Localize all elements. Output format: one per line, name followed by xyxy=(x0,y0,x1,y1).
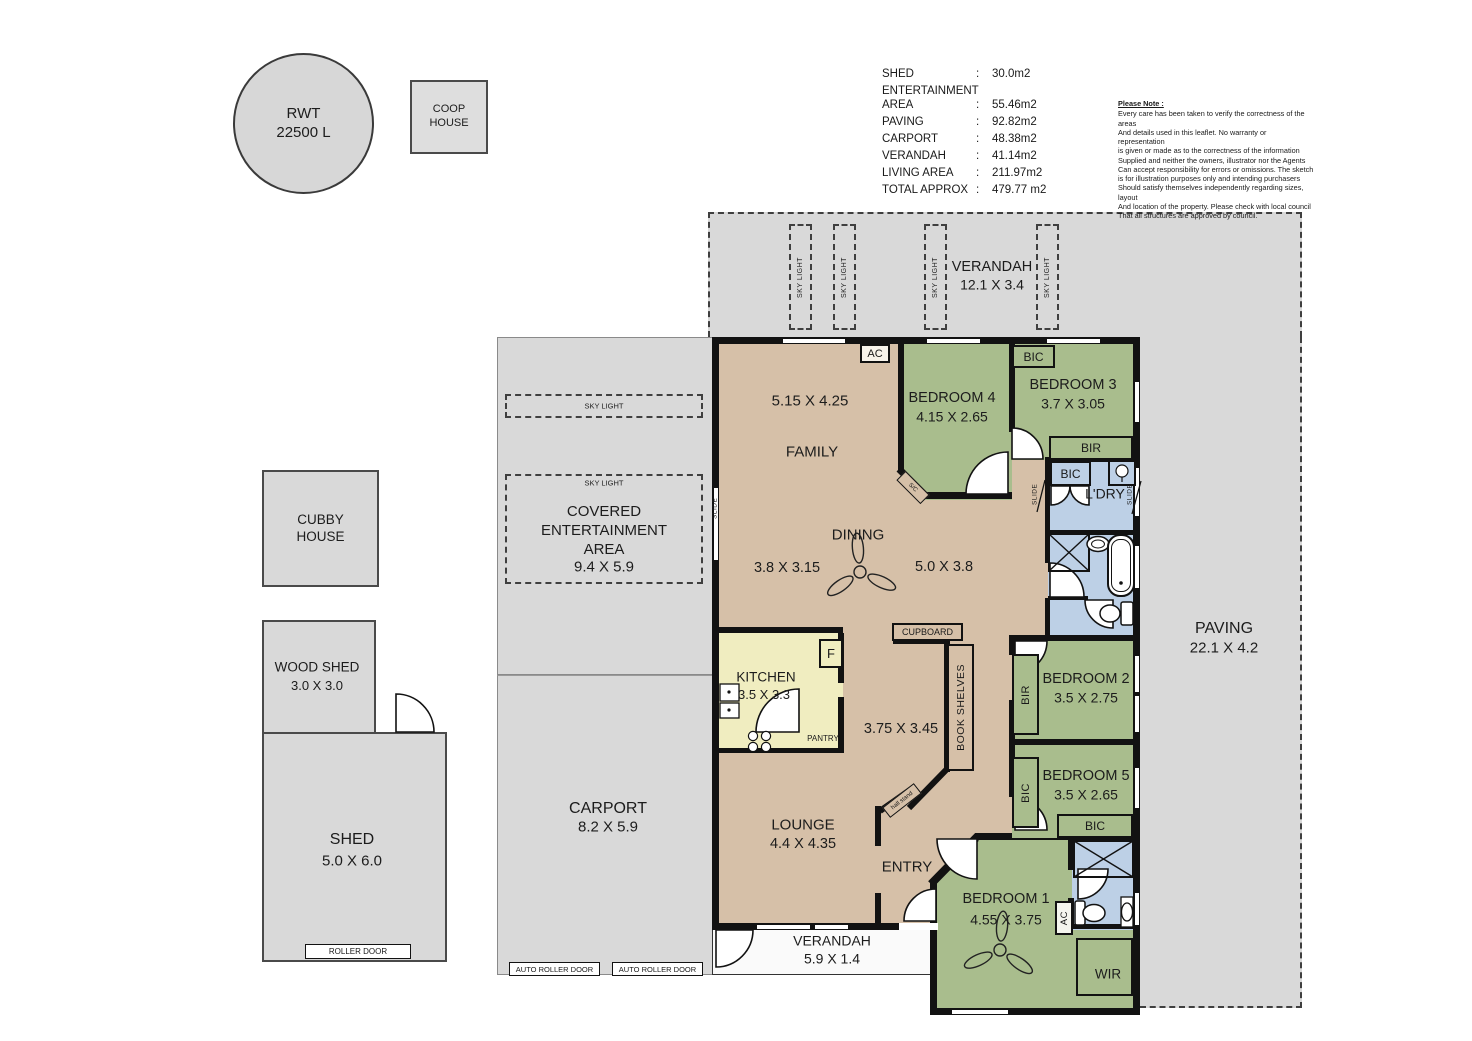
carport-label: CARPORT xyxy=(569,799,647,819)
floorplan-sheet: RWT 22500 L COOP HOUSE CUBBY HOUSE WOOD … xyxy=(0,0,1472,1041)
covered-area-dim: 9.4 X 5.9 xyxy=(574,559,634,578)
rainwater-tank-label: RWT 22500 L xyxy=(276,105,330,143)
bedroom3-label: BEDROOM 3 xyxy=(1029,376,1116,394)
verandah-bottom-label: VERANDAH xyxy=(793,932,871,950)
disclaimer-body: Every care has been taken to verify the … xyxy=(1118,109,1314,220)
roller-door-label: ROLLER DOOR xyxy=(329,947,387,956)
wood-shed-label: WOOD SHED xyxy=(275,660,360,677)
area-summary-table: SHED:30.0m2 ENTERTAINMENT AREA:55.46m2 P… xyxy=(882,68,1112,201)
wall-segment xyxy=(1048,596,1088,600)
window xyxy=(1134,768,1140,808)
bir-bedroom2: BIR xyxy=(1012,654,1039,735)
bic-laundry: BIC xyxy=(1050,461,1091,486)
summary-row: CARPORT:48.38m2 xyxy=(882,133,1112,147)
summary-row: PAVING:92.82m2 xyxy=(882,116,1112,130)
ac-bedroom1: AC xyxy=(1055,901,1073,935)
paving-dim: 22.1 X 4.2 xyxy=(1190,640,1258,659)
family-dim: 5.15 X 4.25 xyxy=(772,393,849,412)
dining-label: DINING xyxy=(832,527,885,546)
cupboard: CUPBOARD xyxy=(892,623,963,641)
disclaimer: Please Note : Every care has been taken … xyxy=(1118,99,1314,220)
bedroom4-label: BEDROOM 4 xyxy=(908,389,995,407)
kitchen-label: KITCHEN xyxy=(736,670,795,687)
coop-house-label: COOP HOUSE xyxy=(429,103,468,131)
wall-segment xyxy=(719,627,843,633)
ac-unit: AC xyxy=(860,344,890,363)
wood-shed-door-arc xyxy=(396,694,434,732)
wall-segment xyxy=(875,893,881,923)
coop-house: COOP HOUSE xyxy=(410,80,488,154)
auto-roller-door: AUTO ROLLER DOOR xyxy=(612,962,703,976)
window xyxy=(1134,382,1140,422)
verandah-bottom-dim: 5.9 X 1.4 xyxy=(804,950,860,968)
sky-light-label: SKY LIGHT xyxy=(1038,240,1057,315)
verandah-top-label: VERANDAH xyxy=(952,258,1033,276)
covered-area-label: COVERED ENTERTAINMENT AREA xyxy=(541,503,667,559)
bir-bedroom3: BIR xyxy=(1049,436,1133,460)
wall-segment xyxy=(1048,530,1133,535)
window xyxy=(757,924,810,930)
dining-dim-left: 3.8 X 3.15 xyxy=(754,559,820,577)
bedroom5-dim: 3.5 X 2.65 xyxy=(1054,786,1118,804)
family-label: FAMILY xyxy=(786,444,838,463)
summary-row: ENTERTAINMENT AREA:55.46m2 xyxy=(882,85,1112,112)
summary-row: SHED:30.0m2 xyxy=(882,68,1112,82)
paving-label: PAVING xyxy=(1195,619,1253,639)
hall-dim: 3.75 X 3.45 xyxy=(864,720,938,738)
sky-light-label: SKY LIGHT xyxy=(926,240,945,315)
carport-dim: 8.2 X 5.9 xyxy=(578,819,638,838)
fridge: F xyxy=(819,639,843,668)
wood-shed-dim: 3.0 X 3.0 xyxy=(291,678,343,694)
bedroom1-label: BEDROOM 1 xyxy=(962,890,1049,908)
slide-label: SLIDE xyxy=(709,486,721,530)
bedroom1-dim: 4.55 X 3.75 xyxy=(970,911,1042,929)
window xyxy=(1134,546,1140,588)
laundry-label: L'DRY xyxy=(1085,485,1125,503)
bedroom5-label: BEDROOM 5 xyxy=(1042,767,1129,785)
cubby-house-label: CUBBY HOUSE xyxy=(296,512,344,546)
bedroom2-label: BEDROOM 2 xyxy=(1042,670,1129,688)
entry-label: ENTRY xyxy=(882,859,933,878)
sky-light-label: SKY LIGHT xyxy=(835,240,854,315)
sky-light-label: SKY LIGHT xyxy=(584,401,623,410)
paving-area xyxy=(1140,337,1302,1008)
bedroom4-dim: 4.15 X 2.65 xyxy=(916,408,988,426)
summary-row: LIVING AREA:211.97m2 xyxy=(882,167,1112,181)
disclaimer-title: Please Note : xyxy=(1118,99,1314,108)
summary-row-total: TOTAL APPROX:479.77 m2 xyxy=(882,184,1112,198)
kitchen-dim: 3.5 X 3.3 xyxy=(738,687,790,703)
window xyxy=(927,338,980,344)
ensuite-fill xyxy=(1072,840,1133,930)
rainwater-tank: RWT 22500 L xyxy=(233,53,374,194)
sky-light-label: SKY LIGHT xyxy=(584,478,623,487)
slide-label: SLIDE xyxy=(1124,472,1136,516)
wall-segment xyxy=(1009,739,1133,745)
wall-segment xyxy=(1068,840,1074,870)
auto-roller-door: AUTO ROLLER DOOR xyxy=(509,962,600,976)
sky-light-label: SKY LIGHT xyxy=(791,240,810,315)
cubby-house: CUBBY HOUSE xyxy=(262,470,379,587)
wall-segment xyxy=(1070,924,1133,929)
wall-segment xyxy=(875,806,881,846)
wall-segment xyxy=(1009,641,1015,655)
wall-segment xyxy=(1045,532,1050,563)
verandah-top-dim: 12.1 X 3.4 xyxy=(960,276,1024,294)
bic-bedroom3: BIC xyxy=(1012,345,1055,368)
window xyxy=(1134,893,1140,925)
bedroom2-dim: 3.5 X 2.75 xyxy=(1054,689,1118,707)
wall-segment xyxy=(920,492,1012,499)
summary-row: VERANDAH:41.14m2 xyxy=(882,150,1112,164)
roller-door: ROLLER DOOR xyxy=(305,944,411,959)
lounge-label: LOUNGE xyxy=(771,817,834,836)
window xyxy=(783,338,845,344)
lounge-dim: 4.4 X 4.35 xyxy=(770,835,836,853)
bic-bedroom5-bottom: BIC xyxy=(1057,814,1133,838)
wall-segment xyxy=(1045,598,1050,638)
slide-label: SLIDE xyxy=(1029,474,1041,514)
bic-bedroom5: BIC xyxy=(1012,757,1039,828)
window xyxy=(1134,656,1140,692)
window xyxy=(1047,338,1100,344)
wall-segment xyxy=(1009,635,1133,641)
wall-segment xyxy=(838,697,844,753)
shed-dim: 5.0 X 6.0 xyxy=(322,853,382,872)
window xyxy=(952,1009,1008,1015)
pantry-label: PANTRY xyxy=(807,734,839,744)
wall-segment xyxy=(898,344,904,470)
window xyxy=(1134,696,1140,732)
wall-segment xyxy=(719,748,843,753)
dining-dim-right: 5.0 X 3.8 xyxy=(915,558,973,576)
entry-door-opening xyxy=(899,923,938,930)
wir-label: WIR xyxy=(1095,967,1121,984)
shed-label: SHED xyxy=(330,830,374,850)
bedroom3-dim: 3.7 X 3.05 xyxy=(1041,395,1105,413)
window xyxy=(815,924,848,930)
book-shelves: BOOK SHELVES xyxy=(947,644,974,771)
